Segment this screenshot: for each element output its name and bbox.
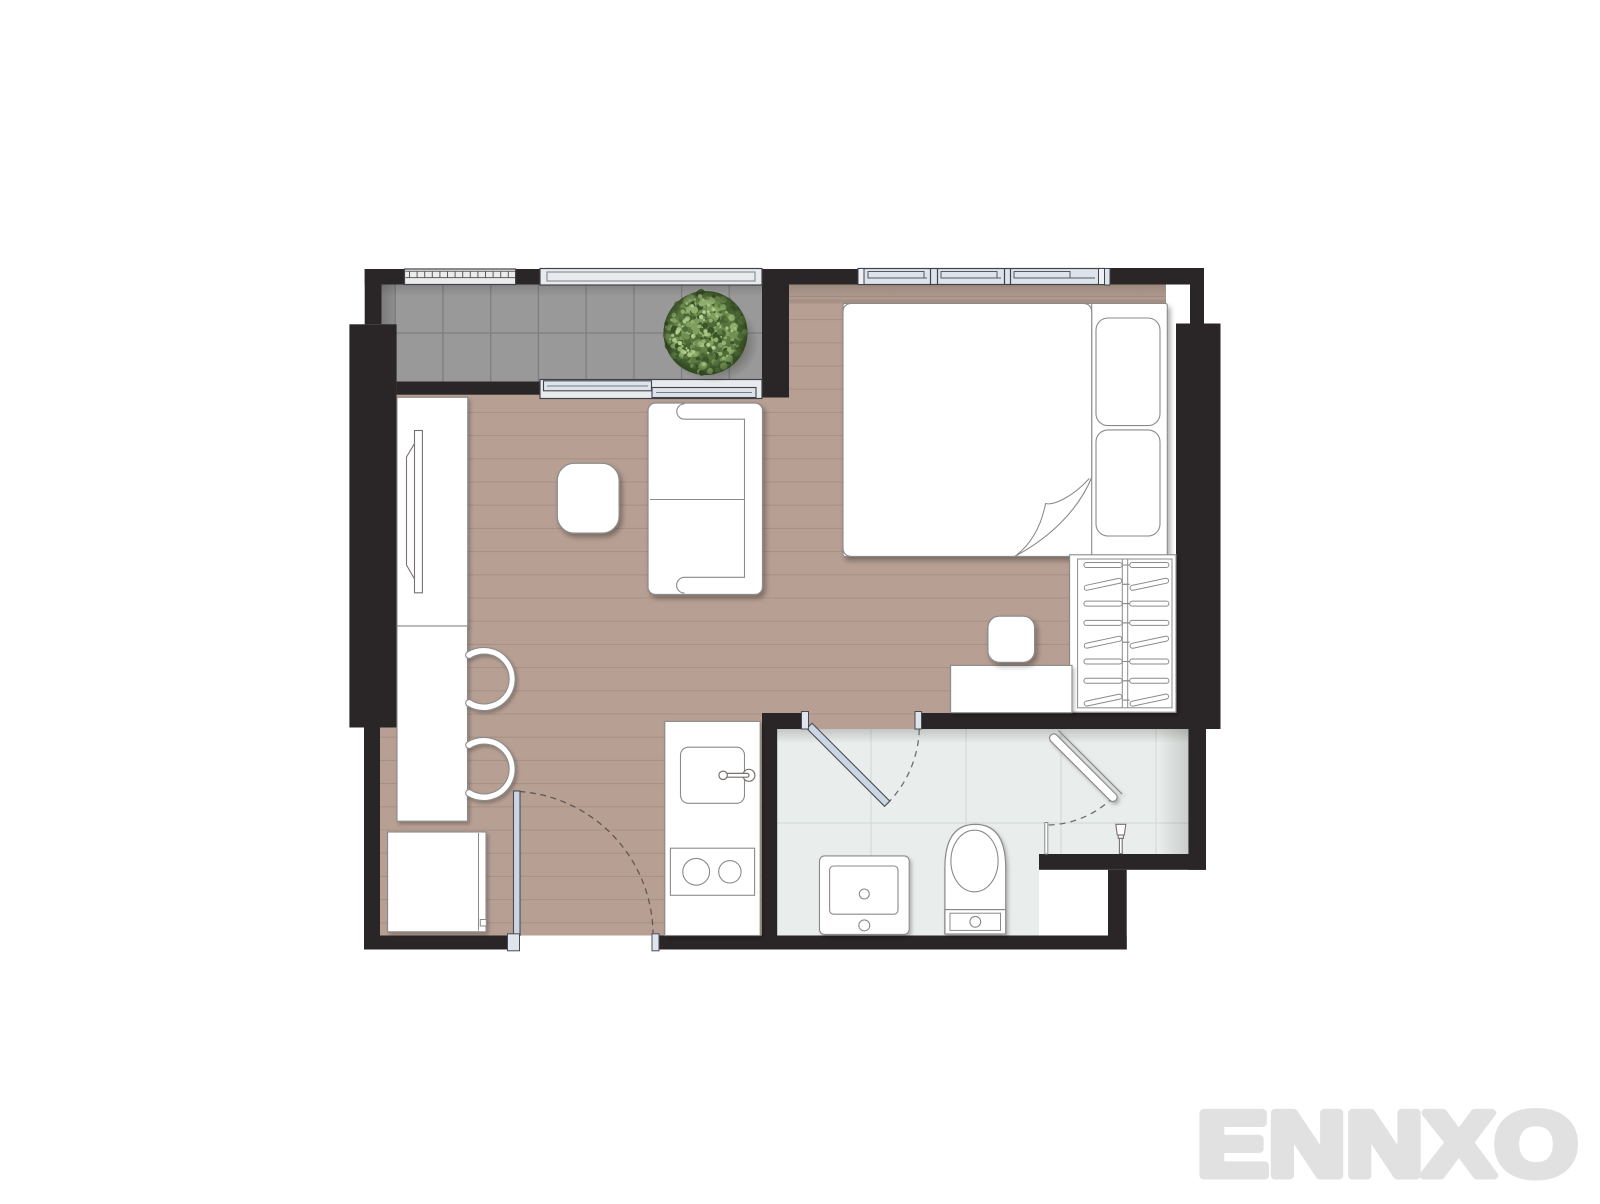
svg-text:ENNXO: ENNXO bbox=[1197, 1094, 1578, 1196]
